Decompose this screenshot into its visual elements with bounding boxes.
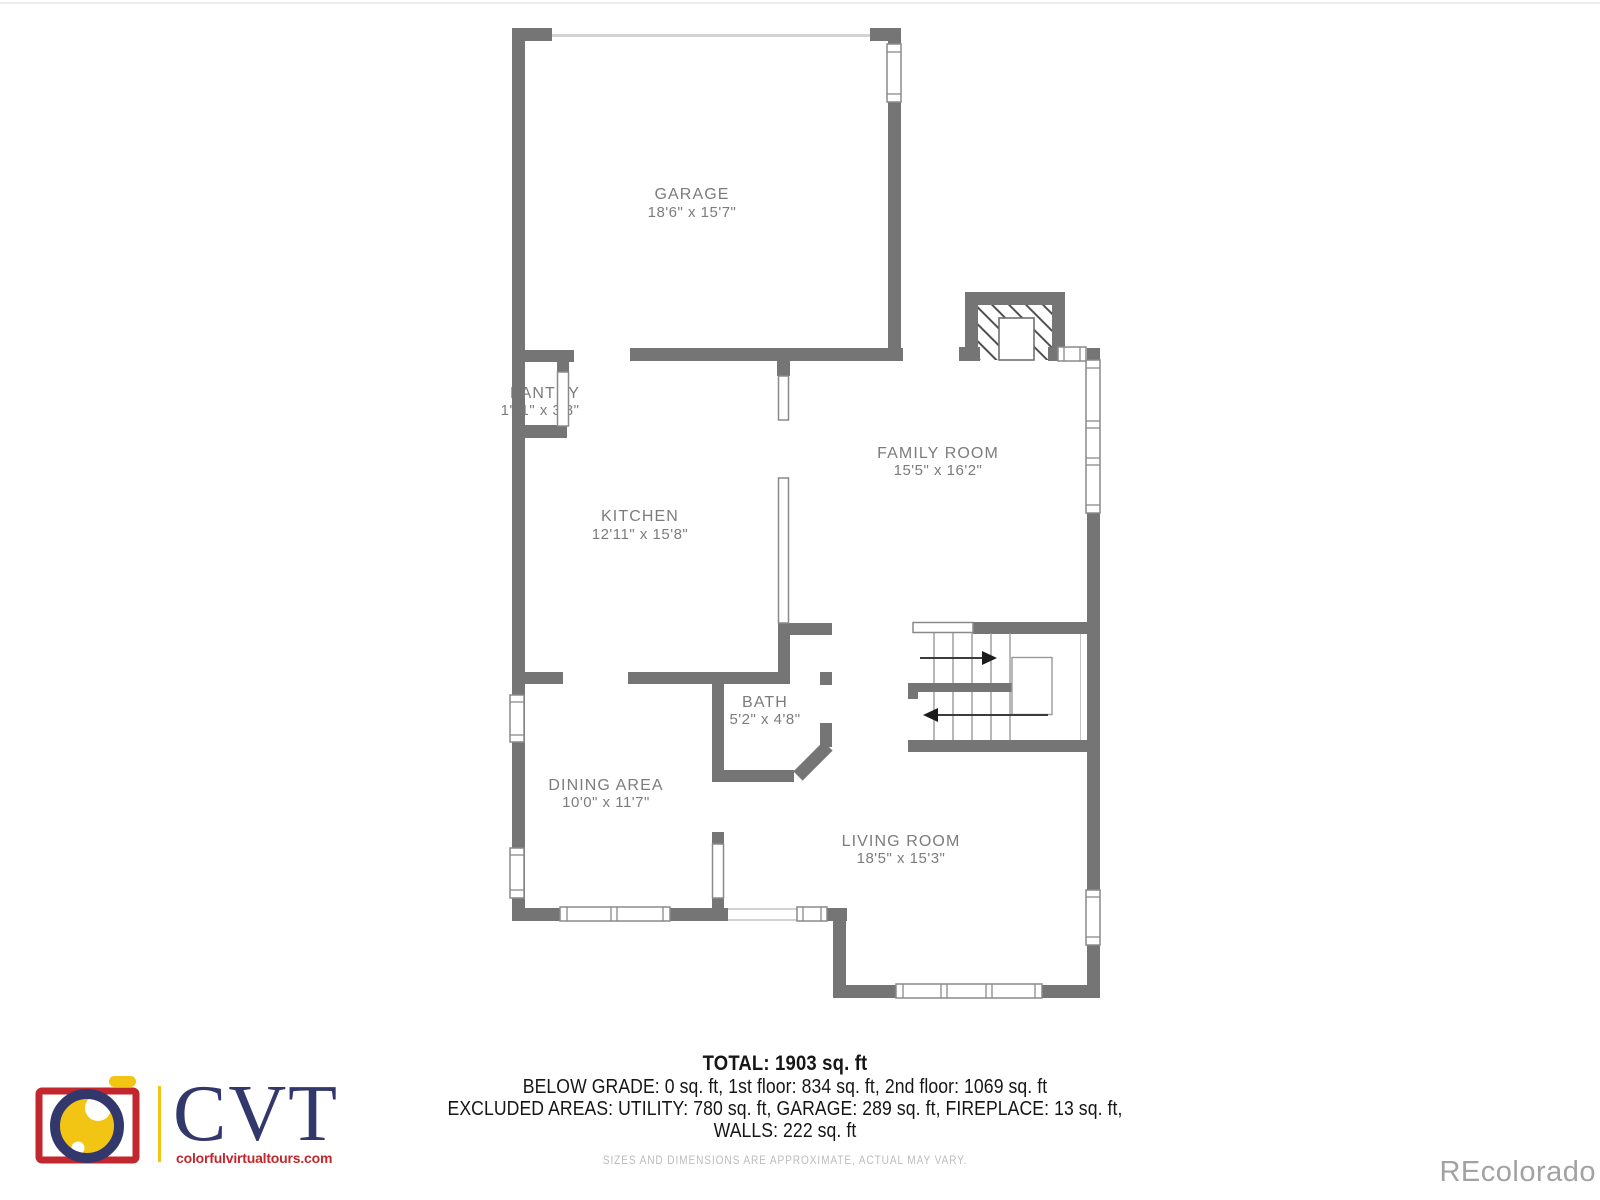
living-room-label: LIVING ROOM bbox=[842, 833, 961, 850]
page-top-divider bbox=[0, 2, 1600, 4]
window-symbol bbox=[896, 984, 1042, 998]
kitchen-opening-symbol bbox=[779, 376, 789, 420]
family-room-dims: 15'5" x 16'2" bbox=[894, 462, 983, 479]
room-label-living-room: LIVING ROOM 18'5" x 15'3" bbox=[842, 833, 961, 867]
garage-label: GARAGE bbox=[654, 186, 729, 203]
bath-dims: 5'2" x 4'8" bbox=[729, 711, 800, 728]
room-label-kitchen: KITCHEN 12'11" x 15'8" bbox=[592, 508, 689, 543]
window-symbol bbox=[797, 907, 827, 921]
garage-dims: 18'6" x 15'7" bbox=[648, 204, 737, 221]
brand-url: colorfulvirtualtours.com bbox=[176, 1150, 332, 1166]
kitchen-label: KITCHEN bbox=[601, 508, 679, 525]
floor-plan-page: GARAGE 18'6" x 15'7" PANTRY 1'11" x 3'8"… bbox=[0, 0, 1600, 1200]
firebox bbox=[999, 318, 1034, 360]
window-symbol bbox=[510, 695, 524, 742]
family-room-label: FAMILY ROOM bbox=[877, 445, 999, 462]
bath-label: BATH bbox=[742, 694, 788, 711]
patio-opening-line bbox=[728, 919, 798, 921]
dining-living-opening-symbol bbox=[713, 844, 724, 898]
room-label-dining-area: DINING AREA 10'0" x 11'7" bbox=[548, 777, 663, 811]
window-symbol bbox=[1086, 360, 1100, 513]
cvt-logo: CVT colorfulvirtualtours.com bbox=[30, 1060, 360, 1166]
arrow-left-icon bbox=[923, 708, 1048, 722]
window-symbol bbox=[510, 848, 524, 898]
dining-area-label: DINING AREA bbox=[548, 777, 663, 794]
room-label-garage: GARAGE 18'6" x 15'7" bbox=[648, 186, 737, 221]
garage-door-line bbox=[552, 34, 870, 37]
room-labels: GARAGE 18'6" x 15'7" PANTRY 1'11" x 3'8"… bbox=[501, 186, 999, 867]
room-label-family-room: FAMILY ROOM 15'5" x 16'2" bbox=[877, 445, 999, 479]
window-symbol bbox=[1058, 347, 1086, 361]
patio-opening-line bbox=[728, 908, 798, 910]
living-room-dims: 18'5" x 15'3" bbox=[857, 850, 946, 867]
logo-divider bbox=[158, 1086, 161, 1162]
stairs-opening-symbol bbox=[913, 623, 973, 633]
floor-plan-svg: GARAGE 18'6" x 15'7" PANTRY 1'11" x 3'8"… bbox=[0, 0, 1600, 1200]
dining-area-dims: 10'0" x 11'7" bbox=[562, 794, 650, 811]
recolorado-watermark: REcolorado bbox=[1439, 1156, 1596, 1189]
window-symbol bbox=[887, 44, 901, 102]
fireplace bbox=[959, 292, 1071, 361]
kitchen-dims: 12'11" x 15'8" bbox=[592, 526, 689, 543]
arrow-right-icon bbox=[920, 651, 997, 665]
camera-icon: CVT colorfulvirtualtours.com bbox=[30, 1060, 360, 1166]
window-symbol bbox=[1086, 890, 1100, 945]
kitchen-divider-symbol bbox=[779, 478, 789, 623]
room-label-bath: BATH 5'2" x 4'8" bbox=[729, 694, 800, 728]
brand-name: CVT bbox=[173, 1070, 339, 1158]
pantry-door-symbol bbox=[558, 372, 569, 426]
window-symbol bbox=[560, 907, 670, 921]
windows bbox=[510, 44, 1100, 998]
